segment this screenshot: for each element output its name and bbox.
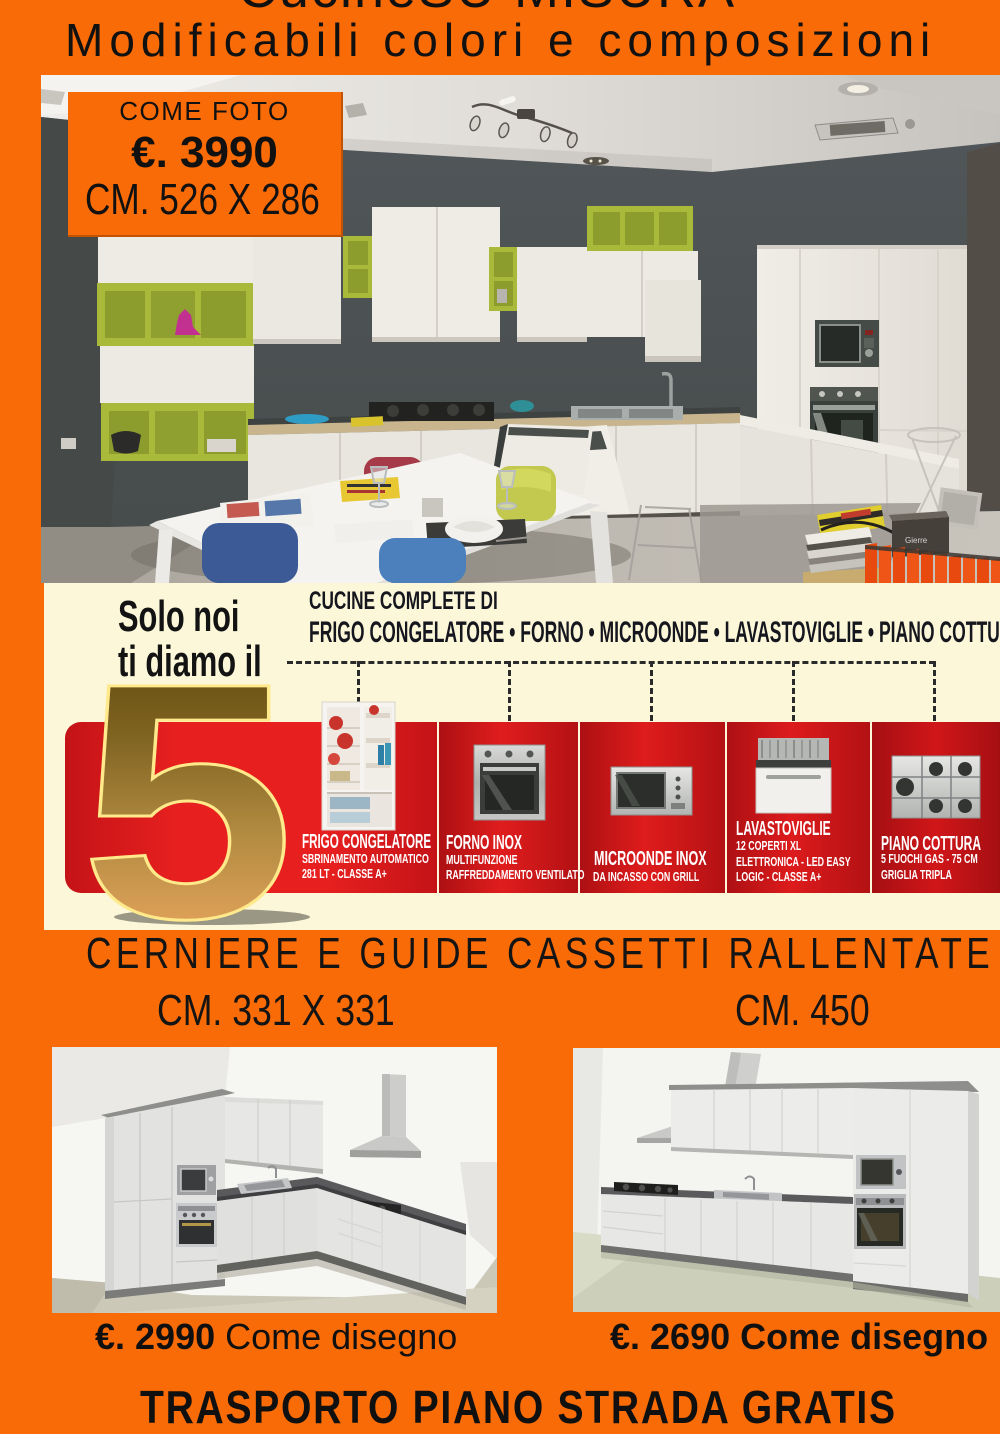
svg-text:5: 5: [80, 613, 295, 930]
svg-text:Gierre: Gierre: [905, 536, 928, 545]
